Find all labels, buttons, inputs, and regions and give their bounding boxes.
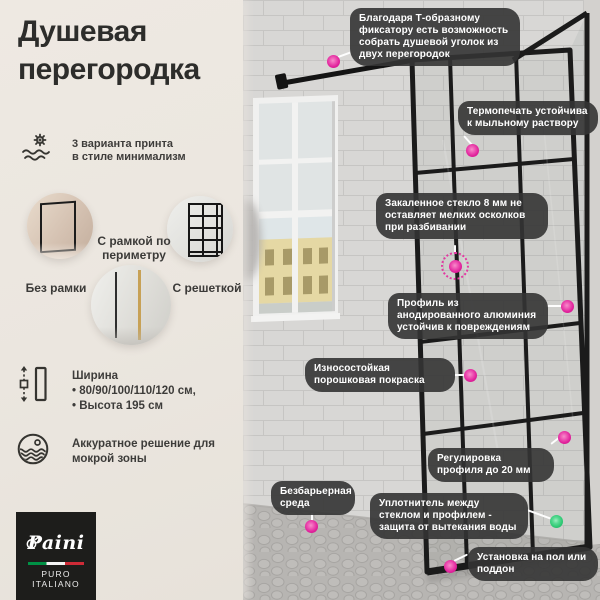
variant-label-framed: С рамкой по периметру [94, 234, 174, 262]
callout-profile-adjustment: Регулировка профиля до 20 мм [428, 448, 554, 482]
dimensions-icon [16, 364, 50, 404]
wet-zone-icon [16, 432, 50, 466]
connector-line [546, 305, 562, 307]
marker-dot-thermal-print [466, 144, 479, 157]
marker-dot-powder-coating [464, 369, 477, 382]
marker-dot-barrier-free [305, 520, 318, 533]
variant-thumb-grid [167, 196, 233, 262]
variant-label-grid: С решеткой [170, 281, 244, 295]
variant-thumb-framed [27, 193, 93, 259]
callout-barrier-free: Безбарьерная среда [271, 481, 355, 515]
variant-label-frameless: Без рамки [20, 281, 92, 295]
callout-anodized-profile: Профиль из анодированного алюминия устой… [388, 293, 548, 339]
callout-tempered-glass: Закаленное стекло 8 мм не оставляет мелк… [376, 193, 548, 239]
callout-floor-install: Установка на пол или поддон [468, 547, 598, 581]
info-panel: Душевая перегородка 3 варианта принта в … [0, 0, 245, 600]
brand-logo: Paini PURO ITALIANO [16, 512, 96, 600]
marker-dot-tempered-glass [441, 252, 469, 280]
marker-dot-anodized-profile [561, 300, 574, 313]
minimal-print-icon [17, 132, 55, 164]
callout-seal: Уплотнитель между стеклом и профилем - з… [370, 493, 528, 539]
marker-dot-t-fixator [327, 55, 340, 68]
brand-tagline: PURO ITALIANO [16, 569, 96, 589]
infographic: Душевая перегородка 3 варианта принта в … [0, 0, 600, 600]
print-feature-text: 3 варианта принта в стиле минимализм [72, 138, 202, 164]
variant-thumb-frameless [91, 265, 171, 345]
callout-t-fixator: Благодаря Т-образному фиксатору есть воз… [350, 8, 520, 66]
callout-powder-coating: Износостойкая порошковая покраска [305, 358, 455, 392]
marker-dot-seal [550, 515, 563, 528]
callout-thermal-print: Термопечать устойчива к мыльному раствор… [458, 101, 598, 135]
marker-dot-floor-install [444, 560, 457, 573]
marker-dot-profile-adjustment [558, 431, 571, 444]
wet-zone-text: Аккуратное решение для мокрой зоны [72, 437, 232, 467]
window [251, 95, 340, 322]
page-title: Душевая перегородка [18, 13, 244, 89]
brand-name: Paini [16, 532, 96, 554]
bathroom-photo: Благодаря Т-образному фиксатору есть воз… [243, 0, 600, 600]
dimensions-text: Ширина • 80/90/100/110/120 см, • Высота … [72, 369, 232, 414]
italian-flag-stripe [28, 562, 84, 565]
